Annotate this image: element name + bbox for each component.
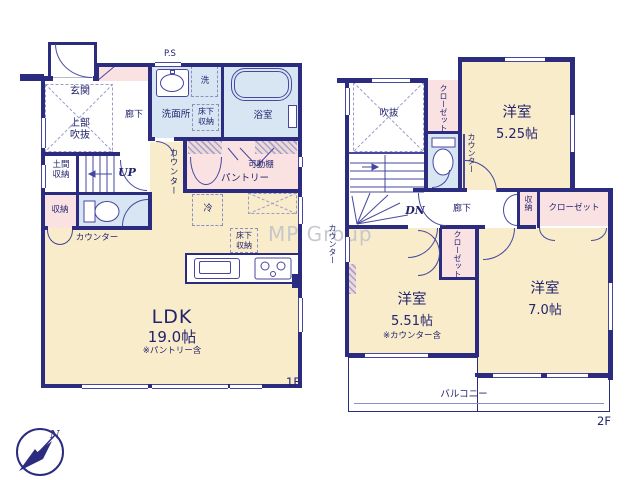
- window: [372, 78, 410, 83]
- window: [298, 197, 303, 224]
- wall: [183, 140, 187, 193]
- label-room525-size: 5.25帖: [491, 127, 543, 143]
- wall: [345, 78, 349, 357]
- wall: [174, 137, 302, 141]
- window: [152, 384, 228, 389]
- label-room551: 洋室: [386, 292, 438, 309]
- window: [547, 373, 588, 378]
- label-closet-c: クローゼット: [452, 230, 463, 278]
- wall: [458, 57, 462, 192]
- label-genkan: 玄関: [62, 86, 98, 98]
- balcony-rail-line: [354, 403, 604, 404]
- label-counter-2f-a: カウンター: [466, 133, 477, 185]
- wall: [72, 226, 152, 230]
- wall: [183, 189, 302, 193]
- ps-box: [155, 62, 181, 67]
- wall: [148, 63, 152, 141]
- window: [365, 353, 428, 358]
- label-bath: 浴室: [246, 110, 280, 121]
- stove: [254, 257, 292, 280]
- floorplan-canvas: MP Group: [0, 0, 640, 480]
- wall: [424, 78, 428, 190]
- window: [41, 118, 46, 148]
- counter-hatch-2f: [349, 264, 356, 294]
- porch-wall: [94, 42, 97, 80]
- wall: [95, 63, 302, 67]
- vanity-basin: [160, 74, 184, 92]
- wall: [41, 152, 120, 156]
- stairs-1f: [79, 155, 119, 193]
- wall: [413, 188, 467, 192]
- label-ldk: LDK: [140, 306, 204, 329]
- wall: [497, 188, 613, 192]
- label-underfloor-a: 床下 収納: [192, 107, 220, 126]
- wall: [41, 192, 152, 195]
- window: [345, 88, 350, 115]
- label-counter-kitchen: カウンター: [167, 148, 179, 208]
- window: [298, 157, 303, 167]
- window: [82, 384, 148, 389]
- label-counter-toilet: カウンター: [74, 233, 120, 243]
- label-underfloor-b: 床下 収納: [230, 231, 258, 250]
- wall: [292, 274, 302, 288]
- label-doma: 土間 収納: [46, 160, 76, 180]
- shower-panel: [288, 105, 297, 128]
- attic-hatch-cross: [248, 193, 297, 214]
- wall: [76, 155, 79, 228]
- label-room525: 洋室: [494, 105, 540, 122]
- label-pantry: パントリー: [218, 173, 272, 184]
- label-ldk-note: ※パントリー含: [136, 346, 208, 356]
- wall: [345, 225, 408, 229]
- label-upper-void: 上部 吹抜: [60, 118, 100, 142]
- window: [608, 283, 613, 330]
- label-ldk-size: 19.0帖: [138, 328, 206, 346]
- label-room70: 洋室: [518, 281, 572, 298]
- window: [493, 373, 541, 378]
- label-room551-note: ※カウンター含: [378, 331, 446, 341]
- stairs-void-line: [349, 152, 425, 154]
- label-room70-size: 7.0帖: [518, 303, 572, 319]
- compass: N: [14, 424, 68, 478]
- label-fridge: 冷: [200, 204, 216, 215]
- compass-north-label: N: [49, 428, 60, 441]
- label-movable-shelf: 可動棚: [244, 160, 278, 170]
- wall: [475, 228, 479, 357]
- label-floor-2f: 2F: [592, 415, 616, 429]
- label-washer: 洗: [198, 76, 212, 86]
- wall: [517, 225, 536, 229]
- window: [230, 384, 262, 389]
- vanity-tap: [170, 70, 175, 74]
- label-up: UP: [114, 166, 140, 179]
- wall: [298, 63, 302, 388]
- label-hallway-1f: 廊下: [120, 110, 148, 121]
- label-ps: P.S: [156, 49, 184, 59]
- label-shuno-2f: 収納: [523, 195, 534, 225]
- label-hallway-2f: 廊下: [448, 204, 476, 215]
- label-closet-a: クローゼット: [438, 84, 449, 132]
- porch-wall: [48, 42, 51, 80]
- wall: [537, 190, 540, 228]
- window: [570, 115, 575, 152]
- bathtub-inner: [234, 71, 289, 98]
- shoe-cabinet-line: [97, 66, 150, 81]
- label-room551-size: 5.51帖: [382, 314, 442, 330]
- wall: [152, 137, 155, 141]
- wall: [41, 76, 53, 81]
- label-void-2f: 吹抜: [372, 108, 406, 119]
- toilet-1f: [82, 198, 124, 225]
- kitchen-sink-inner: [199, 261, 231, 274]
- label-dn: DN: [402, 204, 428, 217]
- window: [298, 298, 303, 332]
- label-counter-2f-b: カウンター: [327, 224, 338, 276]
- shelf-hatch: [188, 141, 222, 154]
- wall: [517, 190, 520, 228]
- window: [345, 237, 350, 262]
- label-floor-1f: 1F: [282, 376, 304, 390]
- label-closet-b: クローゼット: [543, 203, 605, 213]
- wall: [148, 192, 152, 230]
- label-balcony: バルコニー: [426, 389, 502, 400]
- wall: [221, 66, 224, 138]
- label-shuno-1f: 収納: [48, 205, 72, 215]
- window: [505, 57, 545, 62]
